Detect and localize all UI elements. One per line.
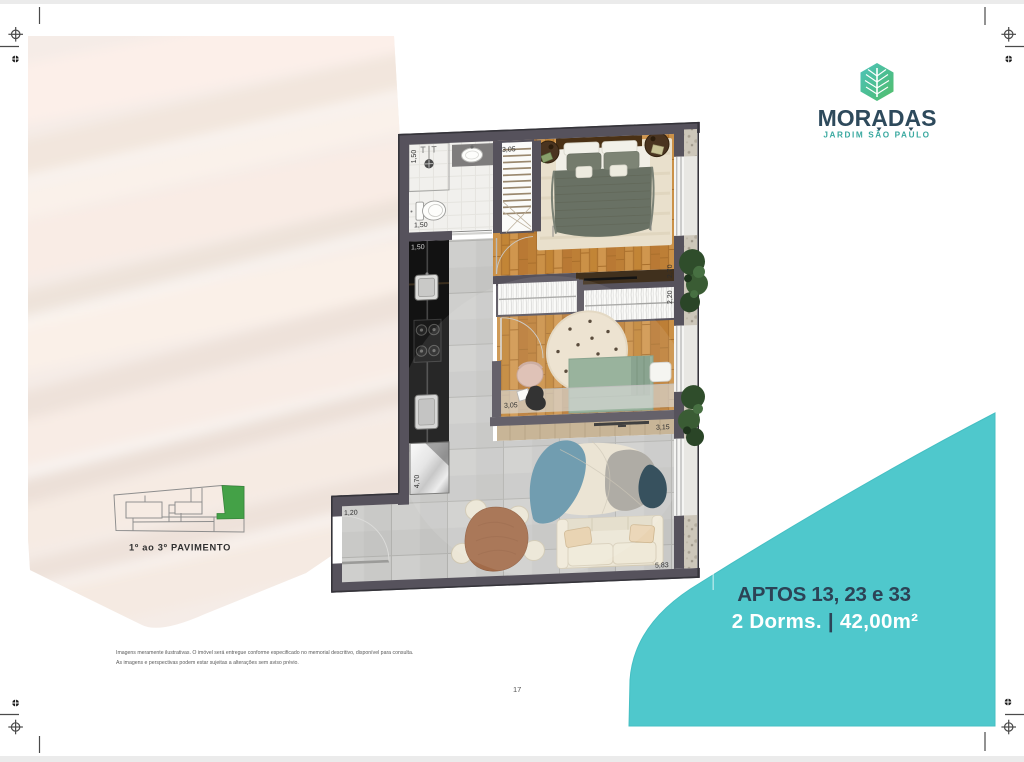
svg-text:1,50: 1,50	[411, 244, 425, 252]
svg-text:Imagens meramente ilustrativas: Imagens meramente ilustrativas. O imóvel…	[116, 650, 413, 656]
svg-text:2,20: 2,20	[667, 290, 674, 304]
svg-text:2,70: 2,70	[667, 264, 674, 278]
svg-text:2 Dorms. | 42,00m²: 2 Dorms. | 42,00m²	[732, 610, 919, 633]
svg-text:1,50: 1,50	[414, 222, 428, 230]
svg-text:4,70: 4,70	[414, 474, 421, 488]
svg-text:APTOS 13, 23 e 33: APTOS 13, 23 e 33	[737, 583, 910, 606]
svg-text:3,15: 3,15	[656, 424, 670, 432]
svg-text:3,05: 3,05	[504, 402, 518, 410]
svg-text:JARDIM SÃO PAULO: JARDIM SÃO PAULO	[823, 130, 930, 140]
svg-text:5,83: 5,83	[655, 562, 669, 570]
svg-text:1,50: 1,50	[411, 149, 418, 163]
svg-text:MORADAS: MORADAS	[818, 105, 937, 131]
svg-text:As imagens e perspectivas pode: As imagens e perspectivas podem estar su…	[116, 660, 299, 666]
svg-text:1,20: 1,20	[344, 510, 358, 518]
svg-text:3,05: 3,05	[502, 146, 516, 154]
svg-text:17: 17	[513, 685, 521, 694]
svg-text:1º ao 3º PAVIMENTO: 1º ao 3º PAVIMENTO	[129, 543, 231, 553]
